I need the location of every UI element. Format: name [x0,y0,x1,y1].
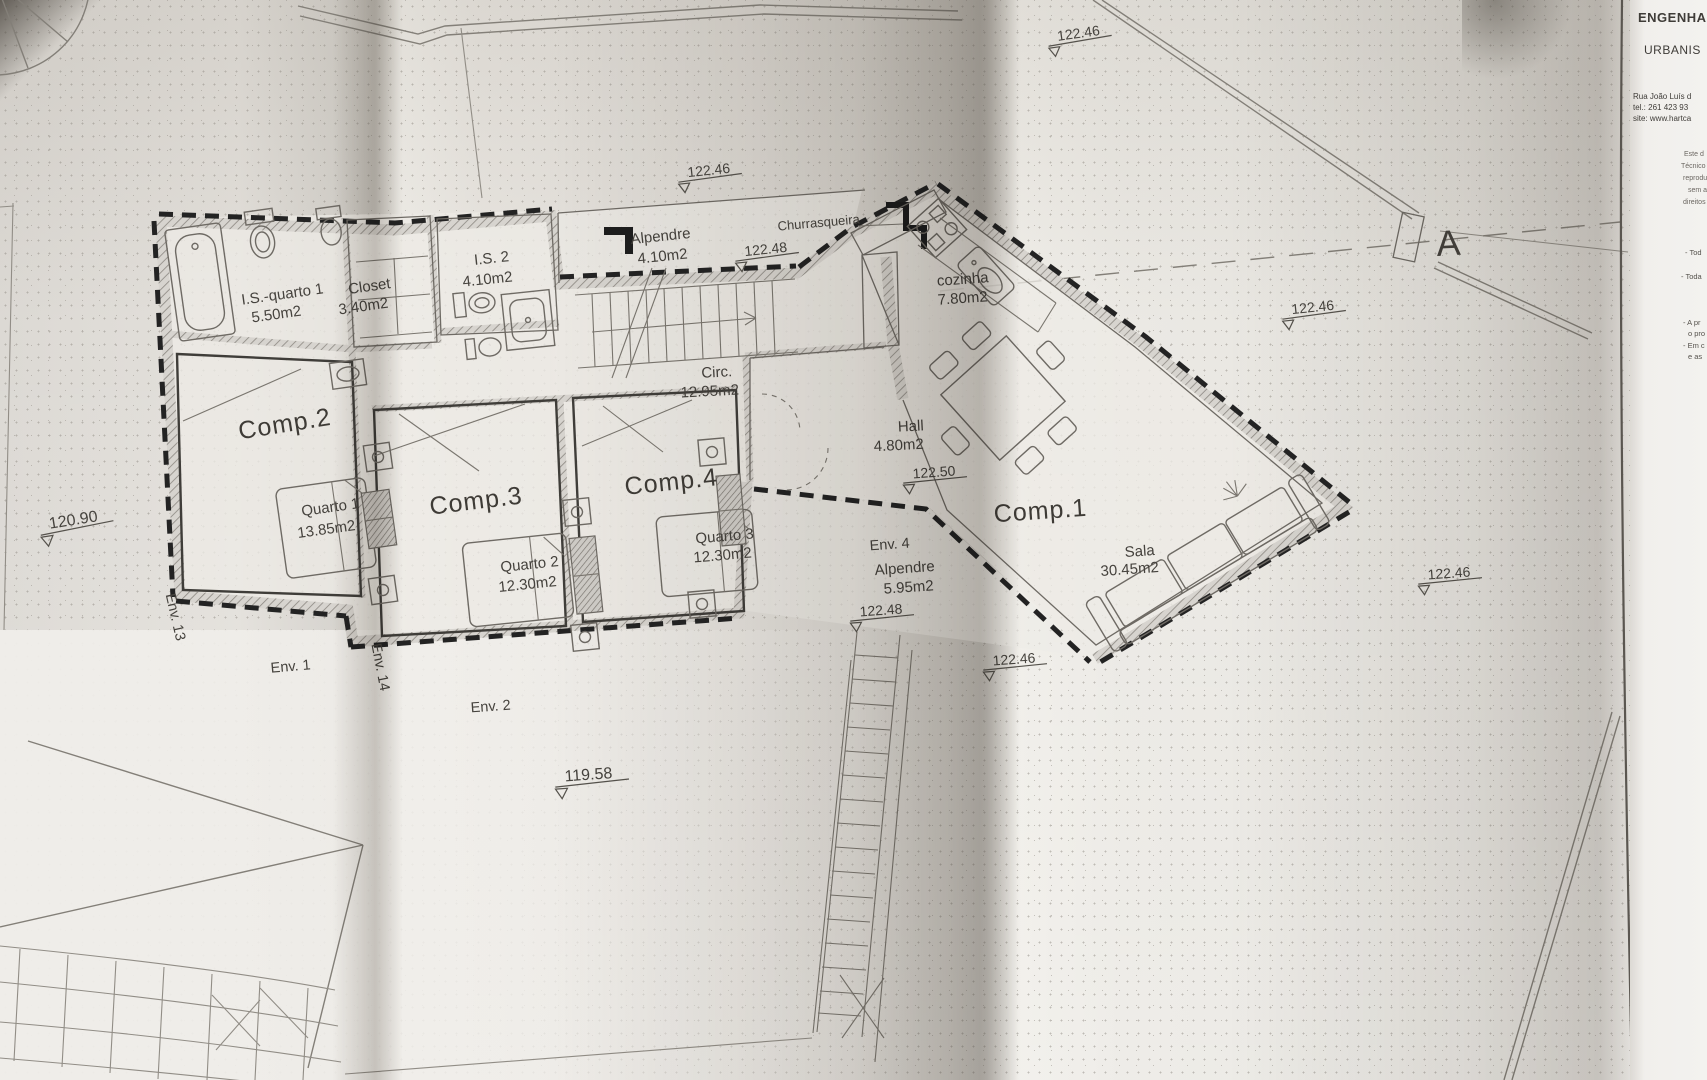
floorplan-photo: I.S.-quarto 1 5.50m2 Closet 3.40m2 I.S. … [0,0,1707,1080]
crease-shadows [0,0,1707,1080]
